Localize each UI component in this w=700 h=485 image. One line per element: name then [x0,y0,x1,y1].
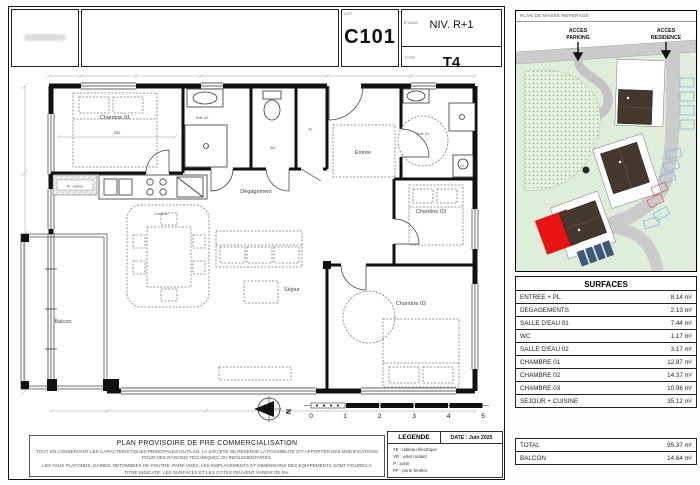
room-label-sde01: Sde 01 [417,131,430,136]
disclaimer-title: PLAN PROVISOIRE DE PRE COMMERCIALISATION [30,440,384,447]
site-plan-header: PLAN DE MASSE REPERAGE [516,11,696,22]
surfaces-table: SURFACES ENTREE + PL.8.14 m² DEGAGEMENTS… [515,276,697,465]
svg-text:1: 1 [343,413,347,420]
windows [45,83,478,394]
room-label-sejour: Séjour [284,287,300,293]
room-label-balcon: Balcon [55,319,72,325]
svg-text:4: 4 [447,413,451,420]
floor-plan-drawing: 383 [11,69,504,431]
lot-box: LOT C101 [341,9,399,67]
room-label-cuisine: Cuisine [154,211,168,216]
svg-text:0: 0 [309,413,313,420]
room-label-pl-option: Pl. option [67,184,84,189]
north-arrow-icon: N [254,396,291,422]
svg-text:RESIDENCE: RESIDENCE [651,35,682,41]
dim-383: 383 [114,130,121,135]
legend-item: P : porte [393,460,502,467]
lot-number: C101 [342,26,398,49]
disclaimer-line2: LES FAUX PLAFONDS, GAINES, RETOMBEES DE … [30,463,384,475]
logo-placeholder [24,34,66,41]
disclaimer-line1: TOUT EN CONSERVANT LES CARACTERISTIQUES … [30,449,384,461]
surfaces-gap [515,408,697,439]
plan-sheet-frame: LOT C101 ETAGE NIV. R+1 TYPE T4 [8,6,505,480]
scale-bar: 0 1 2 3 4 5 [304,403,489,420]
surface-row: SEJOUR + CUISINE35.12 m² [515,394,697,408]
surface-row: SALLE D'EAU 023.17 m² [515,342,697,356]
surface-row: CHAMBRE 0310.96 m² [515,381,697,395]
etage-type-box: ETAGE NIV. R+1 TYPE T4 [401,9,502,67]
balcony-outline [21,234,107,389]
room-label-chambre01: Chambre 01 [100,115,130,121]
surface-row: DEGAGEMENTS2.13 m² [515,303,697,317]
type-label: TYPE [404,55,415,60]
site-plan-drawing: ACCES PARKING ACCES RESIDENCE [516,22,696,271]
legend-item: VR : volet roulant [393,453,502,460]
svg-text:2: 2 [378,413,382,420]
surface-row: CHAMBRE 0112.87 m² [515,355,697,369]
svg-text:5: 5 [481,413,485,420]
surface-row: CHAMBRE 0214.37 m² [515,368,697,382]
lot-label: LOT [344,11,352,16]
svg-text:ACCES: ACCES [657,28,676,34]
kitchen-fixtures [99,175,207,199]
tree-icon [583,167,590,174]
surfaces-header: SURFACES [515,276,697,291]
surface-balcon-row: BALCON14.64 m² [515,451,697,465]
legend-item: TE : tableau électrique [393,446,502,453]
etage-row: ETAGE NIV. R+1 [402,19,501,47]
room-label-ll: LL [461,163,466,168]
room-label-chambre02: Chambre 02 [396,301,426,307]
north-label: N [284,409,291,414]
etage-label: ETAGE [404,20,418,25]
room-label-wc: WC [270,145,277,150]
bathroom-fixtures [185,89,475,177]
site-plan-box: PLAN DE MASSE REPERAGE [515,10,697,272]
room-label-degagement: Dégagement [240,189,272,195]
surface-total-row: TOTAL95.37 m² [515,438,697,452]
svg-text:3: 3 [412,413,416,420]
balcony-posts [21,234,331,391]
surface-row: SALLE D'EAU 017.44 m² [515,316,697,330]
surface-row: WC1.17 m² [515,329,697,343]
room-label-pl: Pl. [309,127,314,132]
legend-box: LEGENDE DATE : Juin 2025 TE : tableau él… [387,431,503,478]
legend-date: DATE : Juin 2025 [441,432,502,443]
room-label-entree: Entrée [355,150,371,156]
room-label-chambre03: Chambre 03 [416,209,446,215]
legend-title: LEGENDE [388,432,441,443]
svg-text:ACCES: ACCES [569,28,588,34]
room-label-sde02: Sde 02 [196,115,209,120]
legend-item: PF : porte-fenêtre [393,467,502,474]
surface-row: ENTREE + PL.8.14 m² [515,290,697,304]
legend-items: TE : tableau électrique VR : volet roula… [393,446,502,474]
disclaimer-box: PLAN PROVISOIRE DE PRE COMMERCIALISATION… [29,435,385,477]
svg-text:PARKING: PARKING [566,35,590,41]
logo-box [11,9,79,67]
title-blank-box [81,9,339,67]
